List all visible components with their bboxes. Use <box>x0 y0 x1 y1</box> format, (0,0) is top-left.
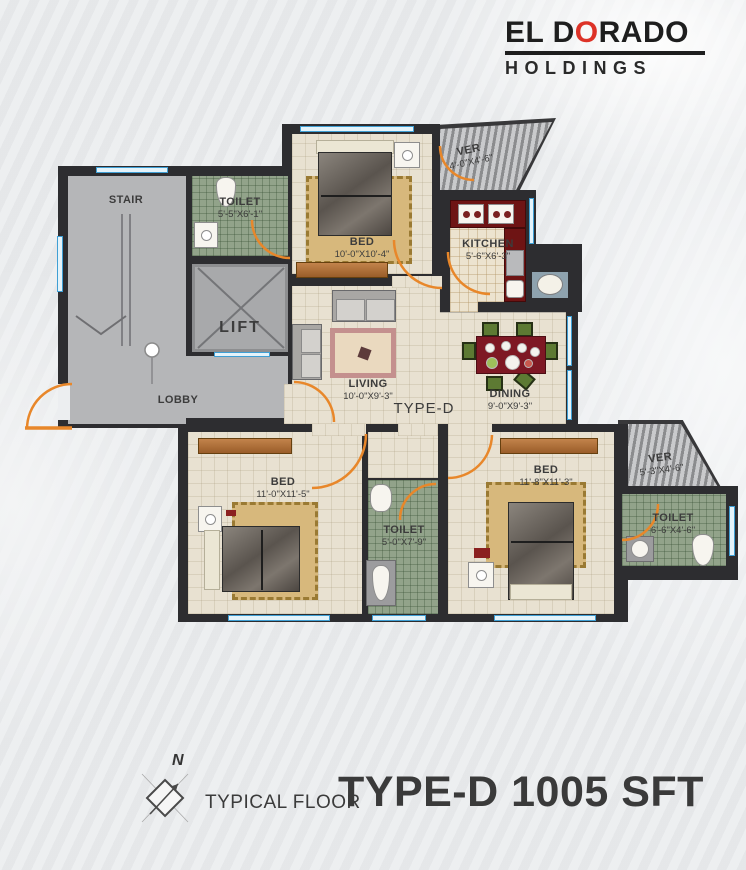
lift-door-strip <box>214 352 270 357</box>
window-toilet-mid-bottom <box>372 615 426 621</box>
toilet-mid-basin <box>370 484 392 512</box>
dining-table <box>476 336 546 374</box>
window-toilet-right <box>729 506 735 556</box>
window-dining-right-2 <box>567 370 572 420</box>
bed-top-side-table <box>394 142 420 168</box>
room-label-dining: DINING9'-0"X9'-3" <box>455 388 565 413</box>
bed-left-wardrobe <box>198 438 292 454</box>
dining-chair <box>462 342 476 360</box>
utility-wash-basin <box>537 274 563 295</box>
opening-bed-right <box>448 424 492 436</box>
opening-lobby-living <box>284 384 292 424</box>
opening-hall <box>398 424 438 436</box>
logo-text-2: RADO <box>599 16 689 49</box>
logo-divider <box>505 51 705 55</box>
bed-left-headboard <box>204 530 220 590</box>
room-label-stair: STAIR <box>81 194 171 207</box>
logo-text-1: EL D <box>505 16 575 49</box>
opening-entry <box>58 384 70 420</box>
plan-type-label: TYPE-D <box>379 400 469 418</box>
toilet-mid-wc <box>366 560 396 606</box>
room-label-bed-left: BED11'-0"X11'-5" <box>228 476 338 501</box>
room-label-toilet-mid: TOILET5'-0"X7'-9" <box>365 524 443 549</box>
opening-bed-left <box>312 424 366 436</box>
bed-right-side-table <box>468 562 494 588</box>
dining-chair <box>516 322 533 337</box>
window-stair-top <box>96 167 168 173</box>
room-label-bed-top: BED10'-0"X10'-4" <box>300 236 424 261</box>
room-label-kitchen: KITCHEN5'-6"X6'-3" <box>447 238 529 263</box>
compass-north-letter: N <box>172 752 184 770</box>
kitchen-sink <box>506 280 524 298</box>
window-dining-right-1 <box>567 316 572 366</box>
bed-left-bed <box>222 526 300 592</box>
room-label-toilet-right: TOILET6'-6"X4'-6" <box>623 512 723 537</box>
living-sofa-long <box>332 290 396 322</box>
logo-wordmark: EL DORADO <box>505 16 705 50</box>
opening-kitchen <box>450 300 478 312</box>
bed-top-bed <box>318 152 392 236</box>
window-stair-left <box>57 236 63 292</box>
hall-floor <box>368 432 438 478</box>
window-bed-right-bottom <box>494 615 596 621</box>
logo-subtitle: HOLDINGS <box>505 58 705 79</box>
living-sofa-short <box>292 324 322 380</box>
bed-right-footboard <box>510 584 572 600</box>
room-label-toilet-top: TOILET5'-5"X6'-1" <box>196 196 284 221</box>
wall-stub-hall <box>438 424 448 502</box>
living-console <box>296 262 388 278</box>
window-kitchen-right <box>529 198 534 244</box>
bed-right-wardrobe <box>500 438 598 454</box>
bed-left-side-table <box>198 506 222 532</box>
window-bed-left-bottom <box>228 615 330 621</box>
dining-chair <box>544 342 558 360</box>
logo: EL DORADO HOLDINGS <box>505 16 705 79</box>
compass-icon: N <box>130 752 200 836</box>
living-rug <box>330 328 396 378</box>
toilet-right-basin <box>626 536 654 562</box>
bed-right-decor <box>474 548 490 558</box>
footer-title: TYPE-D 1005 SFT <box>338 768 704 817</box>
page: EL DORADO HOLDINGS <box>0 0 746 870</box>
logo-accent-letter: O <box>575 16 599 49</box>
room-lobby-floor <box>68 356 288 418</box>
kitchen-stove-2 <box>488 204 514 224</box>
bed-left-decor <box>226 510 236 516</box>
room-label-lobby: LOBBY <box>128 394 228 407</box>
room-label-bed-right: BED11'-8"X11'-3" <box>491 464 601 489</box>
toilet-top-basin <box>194 222 218 248</box>
opening-bed-top <box>392 276 442 288</box>
kitchen-stove-1 <box>458 204 484 224</box>
room-label-lift: LIFT <box>196 318 284 338</box>
dining-chair <box>482 322 499 337</box>
window-bed-top <box>300 126 414 132</box>
room-lift-floor <box>192 264 288 352</box>
